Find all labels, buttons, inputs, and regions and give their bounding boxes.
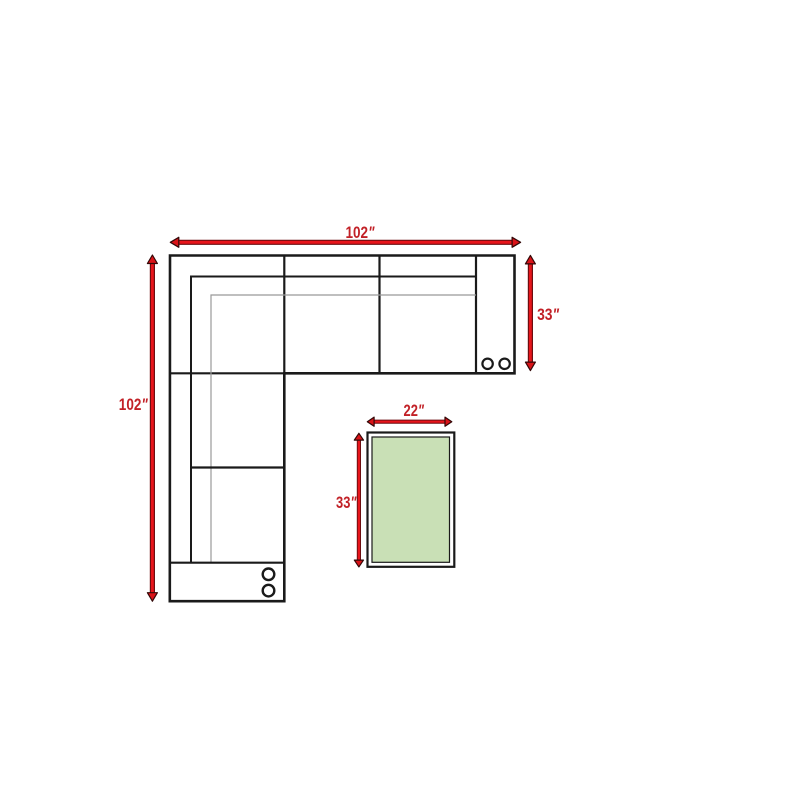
svg-text:33": 33" [336,494,357,512]
svg-text:102": 102" [346,224,375,242]
svg-text:102": 102" [119,396,148,414]
svg-text:33": 33" [537,306,559,324]
svg-text:22": 22" [404,402,425,420]
